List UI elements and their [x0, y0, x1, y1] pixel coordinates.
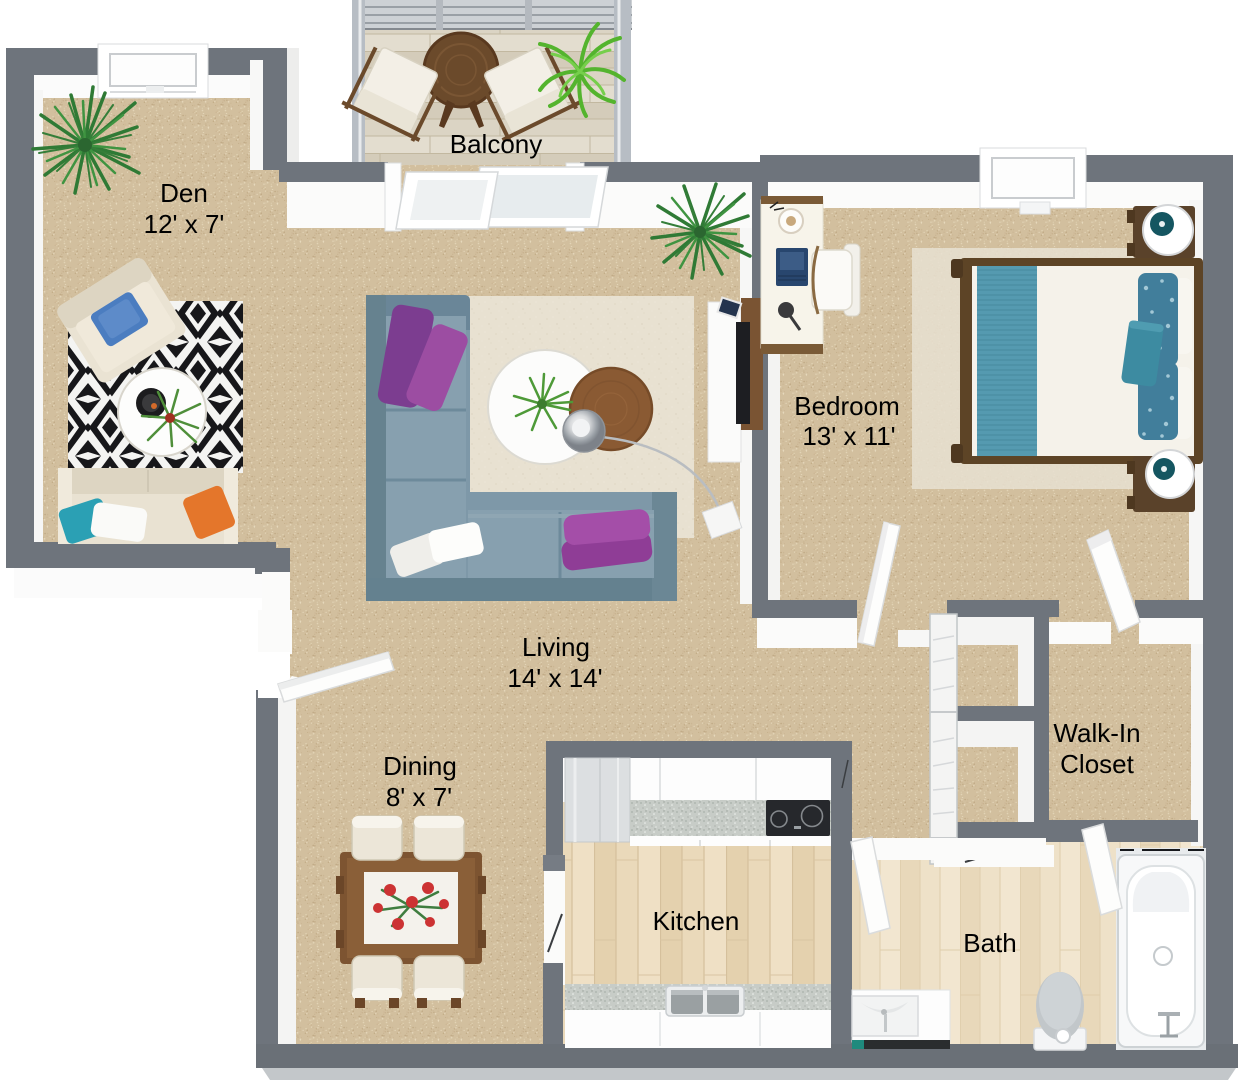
svg-text:Walk-In: Walk-In: [1053, 718, 1140, 748]
svg-text:Bedroom: Bedroom: [794, 391, 900, 421]
svg-text:Balcony: Balcony: [450, 129, 543, 159]
svg-text:Kitchen: Kitchen: [653, 906, 740, 936]
svg-text:Den: Den: [160, 178, 208, 208]
svg-text:14' x 14': 14' x 14': [507, 663, 602, 693]
svg-text:12' x 7': 12' x 7': [144, 209, 225, 239]
svg-text:Living: Living: [522, 632, 590, 662]
svg-text:8' x 7': 8' x 7': [386, 782, 452, 812]
svg-text:Closet: Closet: [1060, 749, 1134, 779]
svg-text:Bath: Bath: [963, 928, 1017, 958]
svg-text:Dining: Dining: [383, 751, 457, 781]
svg-text:13' x 11': 13' x 11': [802, 421, 895, 451]
